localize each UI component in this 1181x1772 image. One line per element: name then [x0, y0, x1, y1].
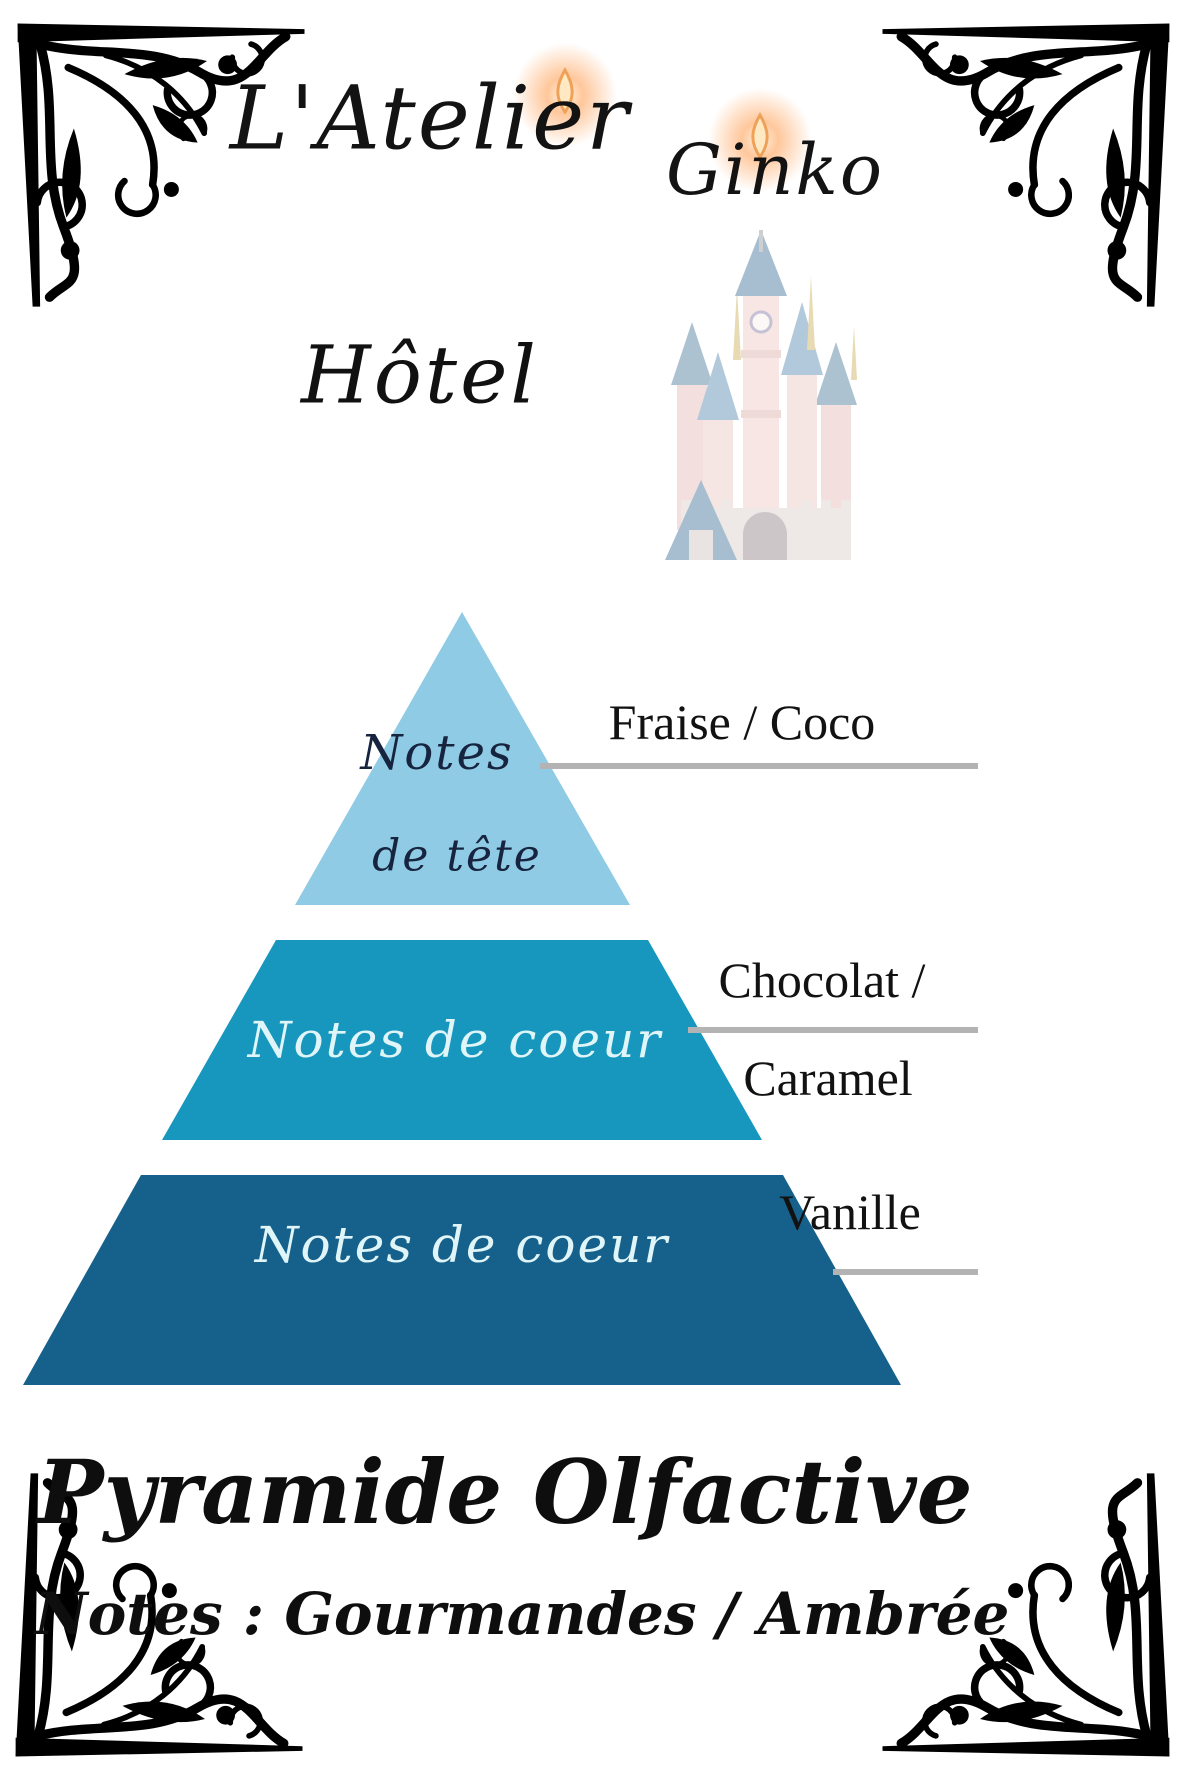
note-bottom: Vanille	[779, 1183, 921, 1241]
connector-line-top	[540, 763, 978, 769]
perfume-pyramid-poster: L'Atelier Ginko Hôtel Notes de tête Note…	[0, 0, 1181, 1772]
poster-subtitle: Notes : Gourmandes / Ambrée	[35, 1580, 1010, 1648]
note-top: Fraise / Coco	[609, 693, 876, 751]
tier-top-label-line2: de tête	[372, 831, 542, 882]
note-middle-line2: Caramel	[743, 1049, 912, 1107]
connector-line-bottom	[833, 1269, 978, 1275]
note-middle-line1: Chocolat /	[719, 951, 926, 1009]
poster-title: Pyramide Olfactive	[37, 1440, 972, 1544]
connector-line-middle	[688, 1027, 978, 1033]
tier-middle-label: Notes de coeur	[248, 1011, 662, 1069]
tier-bottom-label: Notes de coeur	[255, 1216, 669, 1274]
pyramid-tier-bottom-shape	[23, 1175, 901, 1385]
tier-top-label-line1: Notes	[360, 725, 513, 781]
